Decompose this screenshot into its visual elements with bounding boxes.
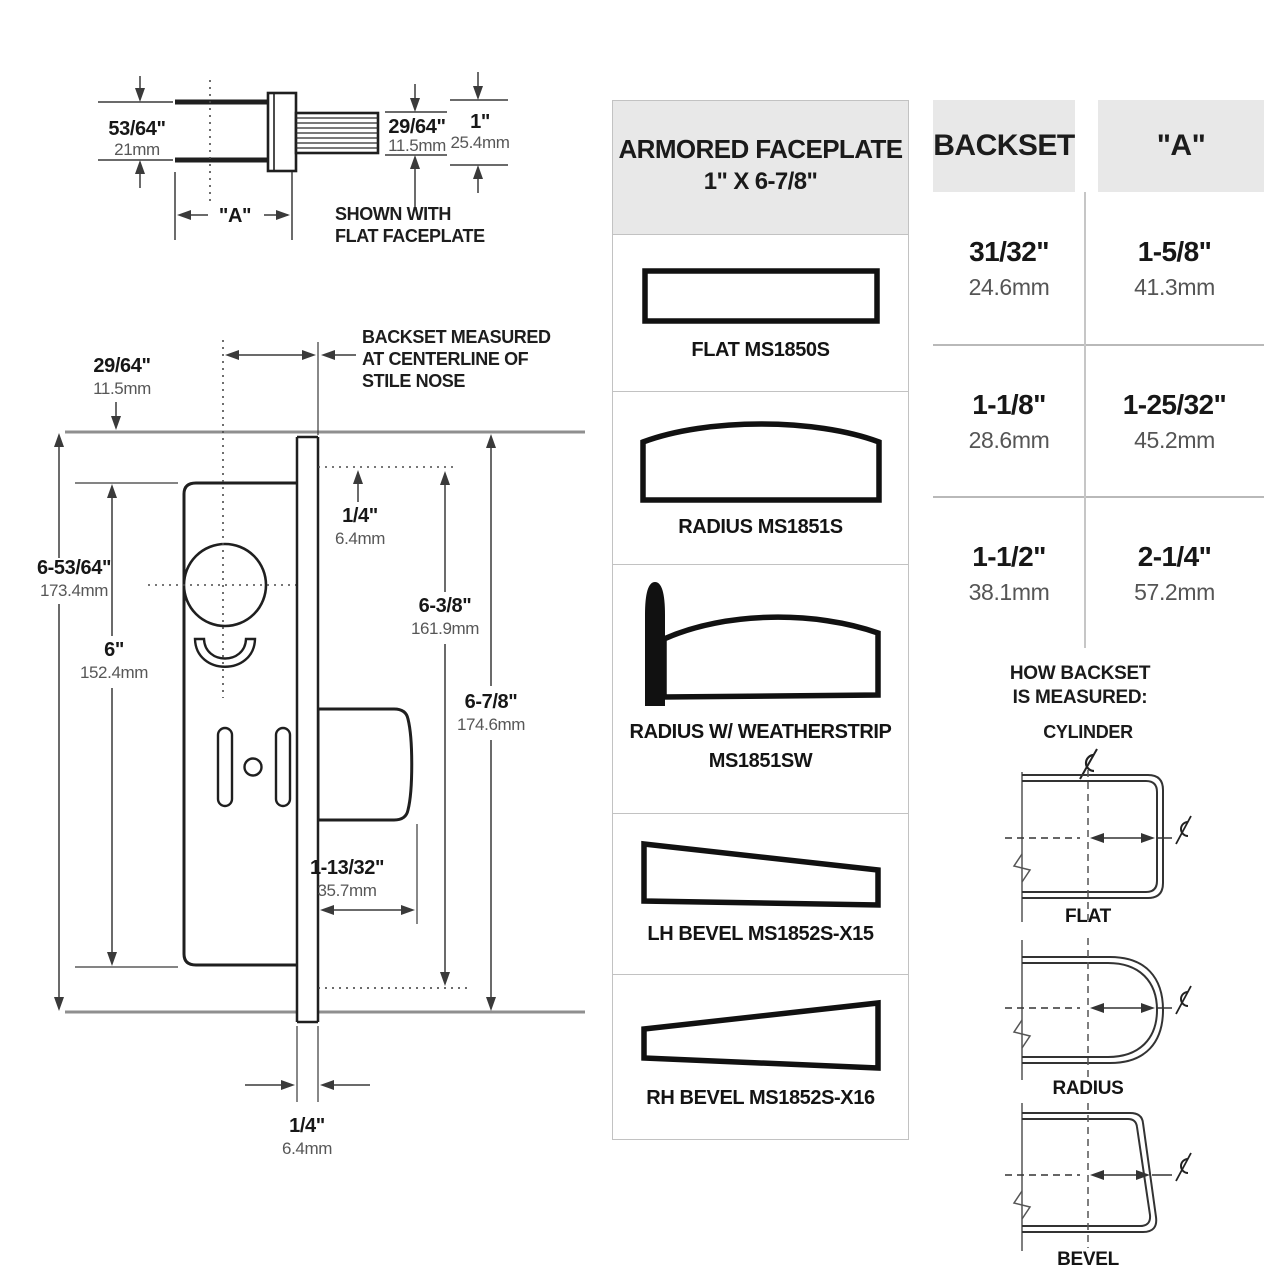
table-column-divider [1084, 192, 1086, 648]
backset-table-body: 31/32" 24.6mm 1-5/8" 41.3mm 1-1/8" 28.6m… [933, 192, 1264, 648]
faceplate-item-rh-bevel: RH BEVEL MS1852S-X16 [613, 974, 908, 1141]
dim-top-gap-mm: 6.4mm [335, 529, 385, 548]
backset-inch: 31/32" [969, 236, 1049, 268]
a-inch: 2-1/4" [1138, 541, 1212, 573]
dim-stile-offset-in: 29/64" [93, 355, 150, 377]
a-inch: 1-5/8" [1138, 236, 1212, 268]
backset-mm: 24.6mm [969, 274, 1050, 301]
weatherstrip-fin [646, 583, 664, 705]
dim-stile-offset-arrow [111, 402, 121, 430]
plan-bolt [296, 113, 378, 153]
dim-faceplate-mm: 174.6mm [457, 715, 525, 734]
backset-mm: 38.1mm [969, 579, 1050, 606]
dim-case-height [54, 433, 64, 1011]
centerline-icon [1176, 986, 1191, 1014]
dim-top-gap-arrow [353, 470, 363, 502]
a-mm: 41.3mm [1134, 274, 1215, 301]
rh-bevel-profile [639, 997, 883, 1075]
dim-53-64-in: 53/64" [108, 118, 165, 140]
faceplate-panel-subtitle: 1" X 6-7/8" [613, 168, 908, 196]
radius-faceplate-profile [639, 412, 883, 504]
flat-faceplate-profile [641, 267, 881, 325]
dim-1in: 1" [470, 111, 490, 133]
faceplate-item-label: FLAT MS1850S [691, 339, 829, 362]
dim-top-gap-in: 1/4" [342, 505, 378, 527]
plan-caption-line2: FLAT FACEPLATE [335, 226, 485, 246]
lock-front-view-diagram: BACKSET MEASURED AT CENTERLINE OF STILE … [30, 310, 600, 1190]
how-backset-title-line2: IS MEASURED: [985, 686, 1175, 710]
a-cell: 1-25/32" 45.2mm [1085, 346, 1264, 496]
faceplate-panel-title: ARMORED FACEPLATE [613, 134, 908, 165]
a-column-header: "A" [1098, 100, 1264, 192]
spec-sheet: 53/64" 21mm 29/64" 11.5mm 1" 25.4mm "A" … [0, 0, 1280, 1280]
centerline-icon [1176, 1153, 1191, 1181]
backset-table-header: BACKSET "A" [933, 100, 1264, 192]
backset-inch: 1-1/8" [972, 389, 1046, 421]
table-row: 1-1/2" 38.1mm 2-1/4" 57.2mm [933, 496, 1264, 648]
backset-note-line2: AT CENTERLINE OF [362, 349, 529, 369]
faceplate-item-label: LH BEVEL MS1852S-X15 [647, 923, 873, 946]
dim-a-label: "A" [219, 205, 251, 227]
a-mm: 57.2mm [1134, 579, 1215, 606]
header-gap [1075, 100, 1098, 192]
dim-face-thickness-mm: 6.4mm [282, 1139, 332, 1158]
dim-case-inner-mm: 152.4mm [80, 663, 148, 682]
plan-faceplate [268, 93, 296, 171]
faceplate-item-radius-weatherstrip: RADIUS W/ WEATHERSTRIP MS1851SW [613, 564, 908, 813]
dim-faceplate-inner-mm: 161.9mm [411, 619, 479, 638]
how-backset-title: HOW BACKSET IS MEASURED: [985, 662, 1175, 710]
armored-faceplate-panel: ARMORED FACEPLATE 1" X 6-7/8" FLAT MS185… [612, 100, 909, 1140]
table-row: 1-1/8" 28.6mm 1-25/32" 45.2mm [933, 344, 1264, 496]
backset-note-line1: BACKSET MEASURED [362, 327, 551, 347]
flat-stile-diagram: FLAT [1000, 770, 1212, 932]
dim-case-inner-in: 6" [104, 639, 124, 661]
dim-1in-mm: 25.4mm [450, 133, 509, 152]
a-inch: 1-25/32" [1123, 389, 1226, 421]
radius-stile-label: RADIUS [1052, 1078, 1123, 1099]
centerline-icon [1176, 816, 1191, 844]
bevel-stile-label: BEVEL [1057, 1249, 1120, 1270]
flat-stile-label: FLAT [1065, 906, 1112, 927]
dim-53-64-mm: 21mm [114, 140, 160, 159]
faceplate-item-label2: MS1851SW [709, 750, 813, 773]
dim-case-height-in: 6-53/64" [37, 557, 111, 579]
cylinder-label: CYLINDER [1008, 722, 1168, 743]
radius-stile-diagram: RADIUS [1000, 938, 1212, 1102]
dim-face-thickness [245, 1026, 370, 1102]
deadbolt [318, 709, 412, 820]
a-cell: 1-5/8" 41.3mm [1085, 192, 1264, 344]
faceplate-item-label: RH BEVEL MS1852S-X16 [646, 1087, 874, 1110]
dim-case-height-mm: 173.4mm [40, 581, 108, 600]
backset-cell: 31/32" 24.6mm [933, 192, 1085, 344]
dim-faceplate-inner-in: 6-3/8" [419, 595, 472, 617]
backset-table: BACKSET "A" 31/32" 24.6mm 1-5/8" 41.3mm … [933, 100, 1264, 648]
dim-stile-offset-mm: 11.5mm [93, 379, 151, 398]
backset-inch: 1-1/2" [972, 541, 1046, 573]
dim-29-64-in: 29/64" [388, 116, 445, 138]
faceplate-item-radius: RADIUS MS1851S [613, 391, 908, 564]
dim-bolt-throw-mm: 35.7mm [317, 881, 376, 900]
radius-weatherstrip-profile [636, 575, 886, 709]
lh-bevel-profile [639, 838, 883, 910]
faceplate-item-label: RADIUS MS1851S [678, 516, 842, 539]
plan-caption-line1: SHOWN WITH [335, 204, 451, 224]
faceplate-item-lh-bevel: LH BEVEL MS1852S-X15 [613, 813, 908, 974]
dim-29-64-mm: 11.5mm [388, 136, 446, 155]
backset-mm: 28.6mm [969, 427, 1050, 454]
backset-column-header: BACKSET [933, 100, 1075, 192]
faceplate-bar [297, 437, 318, 1022]
a-mm: 45.2mm [1134, 427, 1215, 454]
backset-cell: 1-1/8" 28.6mm [933, 346, 1085, 496]
backset-cell: 1-1/2" 38.1mm [933, 498, 1085, 648]
a-cell: 2-1/4" 57.2mm [1085, 498, 1264, 648]
backset-dimension [225, 342, 356, 435]
backset-note-line3: STILE NOSE [362, 371, 465, 391]
dim-case-inner [75, 483, 178, 967]
dim-faceplate-in: 6-7/8" [465, 691, 518, 713]
how-backset-title-line1: HOW BACKSET [985, 662, 1175, 686]
table-row: 31/32" 24.6mm 1-5/8" 41.3mm [933, 192, 1264, 344]
lock-plan-view-diagram: 53/64" 21mm 29/64" 11.5mm 1" 25.4mm "A" … [40, 60, 540, 270]
faceplate-item-label: RADIUS W/ WEATHERSTRIP [630, 721, 892, 744]
dim-face-thickness-in: 1/4" [289, 1115, 325, 1137]
dim-bolt-throw-in: 1-13/32" [310, 857, 384, 879]
faceplate-panel-header: ARMORED FACEPLATE 1" X 6-7/8" [613, 101, 908, 234]
faceplate-item-flat: FLAT MS1850S [613, 234, 908, 391]
bevel-stile-diagram: BEVEL [1000, 1103, 1212, 1275]
